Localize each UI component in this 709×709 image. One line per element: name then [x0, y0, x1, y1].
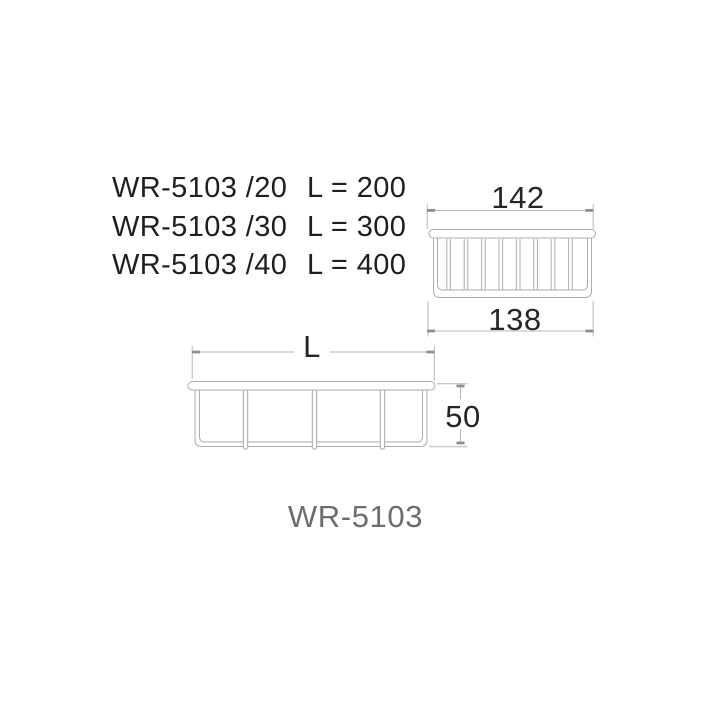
- front-view-wires: [246, 386, 383, 448]
- dim-label-length: L: [292, 331, 332, 362]
- dim-label-138: 138: [468, 304, 562, 335]
- variant-length: L = 300: [307, 208, 406, 247]
- variant-spec-table: WR-5103 /20 L = 200 WR-5103 /30 L = 300 …: [112, 169, 406, 285]
- variant-model: WR-5103 /30: [112, 208, 307, 247]
- dim-label-height: 50: [438, 401, 488, 432]
- end-view-wires: [449, 239, 571, 290]
- end-view-rail: [429, 230, 596, 239]
- end-view-drawing: [429, 230, 596, 298]
- technical-drawing-canvas: [0, 0, 709, 709]
- product-model-label: WR-5103: [258, 501, 453, 532]
- variant-model: WR-5103 /40: [112, 246, 307, 285]
- front-view-drawing: [188, 382, 435, 448]
- variant-length: L = 400: [307, 246, 406, 285]
- variant-length: L = 200: [307, 169, 406, 208]
- front-view-rail: [188, 382, 435, 391]
- end-view-basket-body: [434, 238, 592, 298]
- front-view-basket-body: [195, 390, 427, 447]
- dim-label-142: 142: [471, 182, 565, 213]
- variant-model: WR-5103 /20: [112, 169, 307, 208]
